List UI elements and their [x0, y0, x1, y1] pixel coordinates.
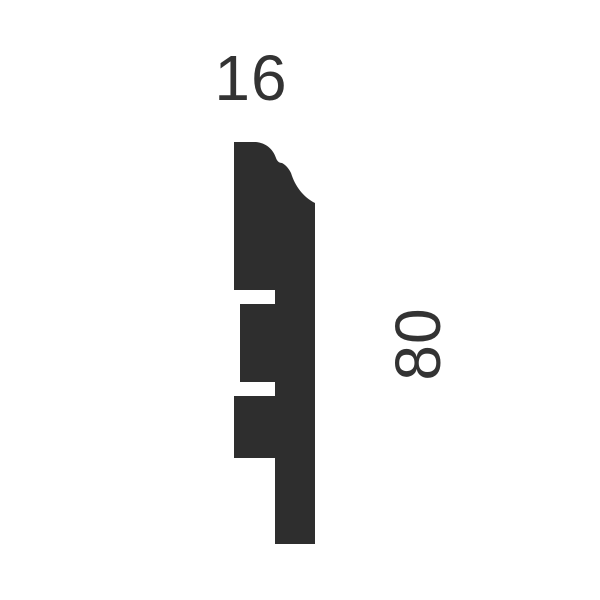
skirting-profile-shape	[234, 142, 315, 544]
width-dimension-label: 16	[214, 42, 287, 114]
profile-diagram-svg: 16 80	[0, 0, 600, 600]
dimension-diagram: 16 80	[0, 0, 600, 600]
height-dimension-label: 80	[382, 307, 454, 380]
